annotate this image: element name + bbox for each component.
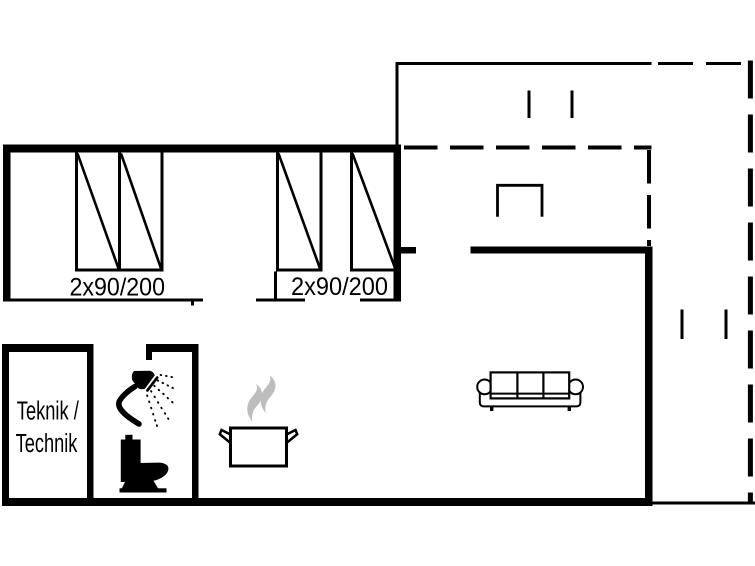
- svg-text:Teknik /: Teknik /: [17, 396, 79, 426]
- svg-text:2x90/200: 2x90/200: [70, 274, 166, 302]
- svg-text:2x90/200: 2x90/200: [291, 273, 388, 301]
- svg-text:Technik: Technik: [16, 428, 78, 458]
